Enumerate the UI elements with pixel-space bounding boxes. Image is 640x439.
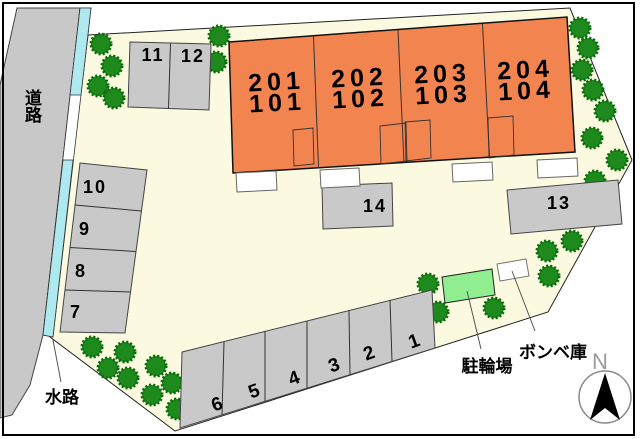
north-arrow-icon: [590, 373, 620, 420]
gas-storage-label: ボンベ庫: [519, 342, 587, 363]
tree-icon: [142, 385, 162, 405]
unit-102-label: 102: [332, 84, 390, 115]
tree-icon: [82, 337, 102, 357]
parking-stall-9-label: 9: [79, 219, 91, 239]
unit-101-label: 101: [249, 88, 307, 119]
tree-icon: [146, 356, 166, 376]
unit-103-label: 103: [415, 80, 473, 111]
parking-stall-14-label: 14: [363, 196, 387, 216]
tree-icon: [102, 56, 122, 76]
entry-step: [320, 168, 360, 188]
parking-stall-14: 14: [322, 183, 393, 229]
site-plan-map: 11 12 10 9 8 7 6 5 4 3 2 1 14 13: [0, 0, 640, 439]
tree-icon: [115, 342, 135, 362]
tree-icon: [91, 34, 111, 54]
tree-icon: [607, 150, 627, 170]
tree-icon: [578, 38, 598, 58]
tree-icon: [570, 18, 590, 38]
tree-icon: [539, 266, 559, 286]
tree-icon: [162, 373, 182, 393]
north-label: N: [592, 349, 608, 374]
parking-stall-13-label: 13: [547, 193, 571, 213]
site-plan-svg: 11 12 10 9 8 7 6 5 4 3 2 1 14 13: [0, 0, 640, 439]
parking-stall-7-label: 7: [70, 302, 82, 322]
entry-step: [537, 158, 578, 178]
tree-icon: [104, 88, 124, 108]
tree-icon: [98, 358, 118, 378]
tree-icon: [484, 298, 504, 318]
unit-104-label: 104: [498, 76, 556, 107]
parking-block-11-12: 11 12: [128, 42, 211, 110]
parking-stall-11-label: 11: [141, 45, 164, 65]
tree-icon: [583, 80, 603, 100]
waterway-leader-line: [53, 340, 61, 382]
parking-stall-13: 13: [507, 180, 622, 234]
road-label: 道路: [21, 88, 42, 124]
tree-icon: [582, 128, 602, 148]
parking-stall-8-label: 8: [75, 261, 87, 281]
bicycle-parking-label: 駐輪場: [462, 356, 513, 377]
parking-stall-10-label: 10: [83, 177, 107, 197]
tree-icon: [537, 241, 557, 261]
tree-icon: [595, 101, 615, 121]
parking-stall-12-label: 12: [181, 46, 205, 66]
tree-icon: [562, 231, 582, 251]
waterway-label: 水路: [45, 387, 80, 408]
tree-icon: [209, 26, 229, 46]
entry-step: [452, 162, 493, 182]
tree-icon: [118, 368, 138, 388]
entry-step: [236, 171, 277, 192]
tree-icon: [572, 60, 592, 80]
